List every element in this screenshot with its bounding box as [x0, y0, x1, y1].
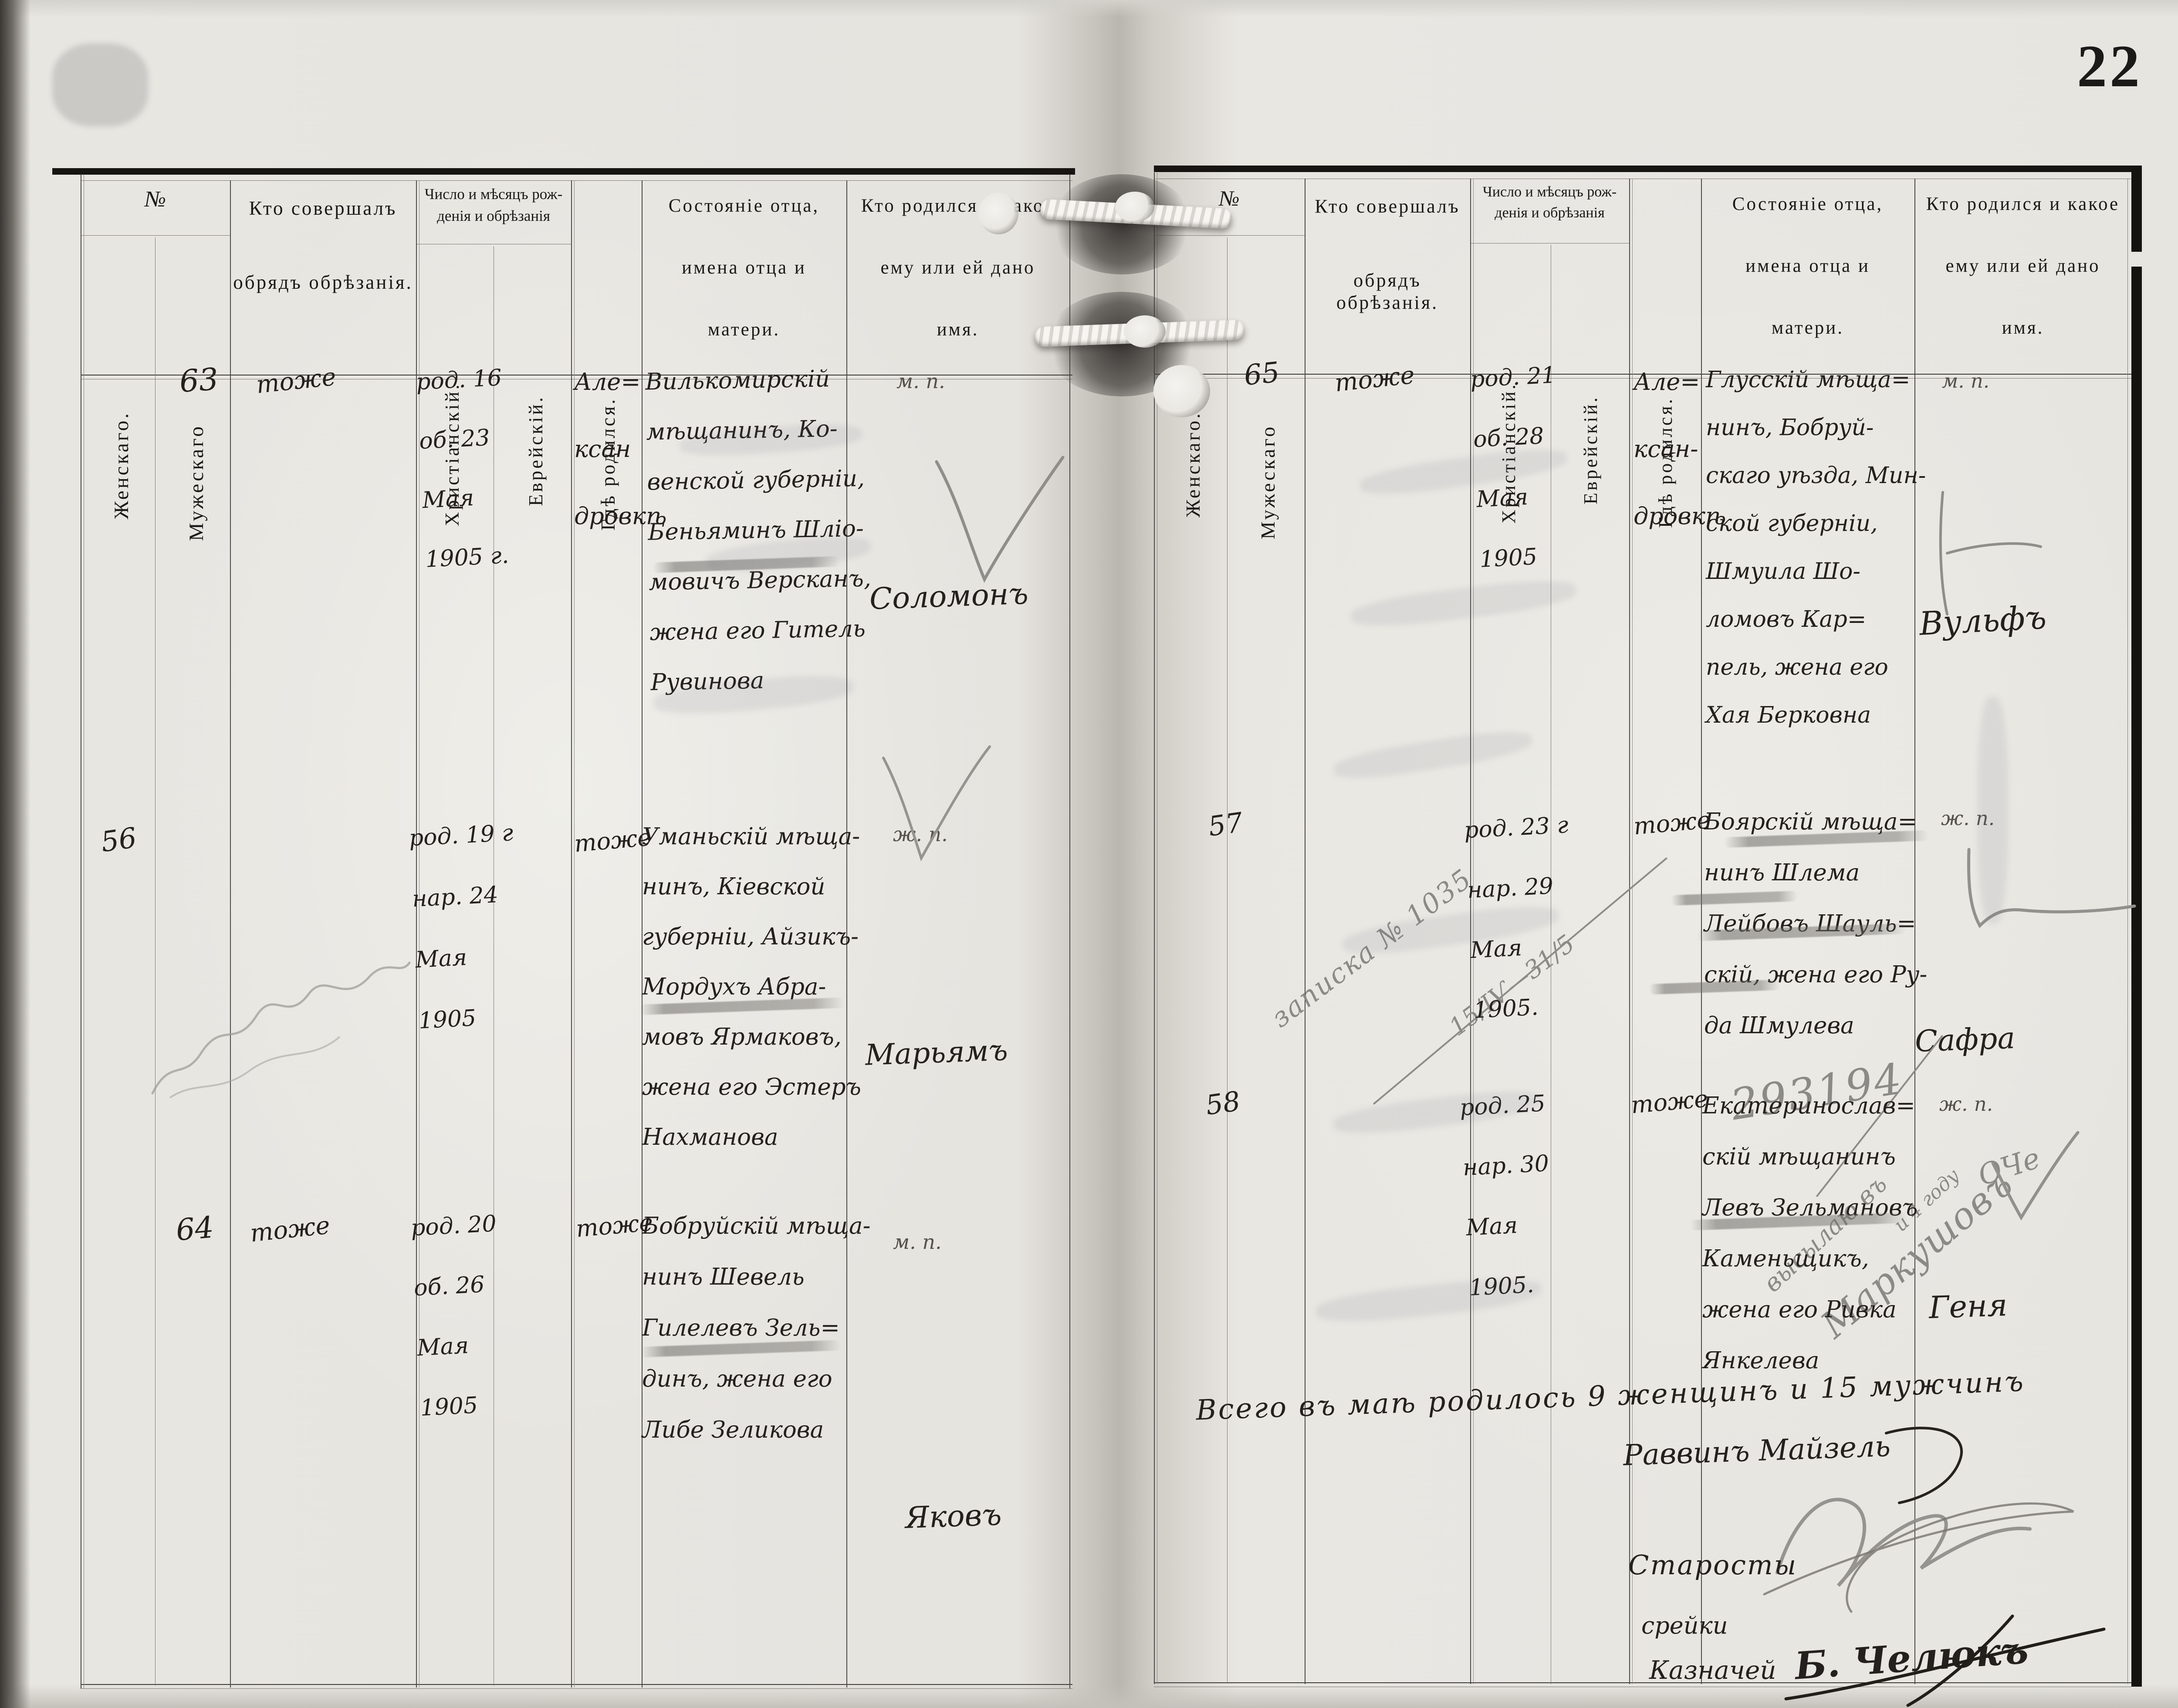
- table-top-bar: [52, 168, 1075, 175]
- entry-number: 56: [99, 822, 139, 859]
- bleedthrough-mark: [1349, 575, 1578, 632]
- col-header-jewish-date: Еврейскій.: [524, 395, 547, 506]
- pencil-scribble: [144, 950, 414, 1106]
- col-header-childname-line1: Кто родился и какое: [846, 195, 1069, 216]
- col-header-dates-line2: денія и обрѣзанія: [1470, 205, 1629, 221]
- col-header-father-line2: имена отца и: [1701, 255, 1914, 277]
- table-rule: [1154, 179, 2131, 179]
- col-header-childname-line1: Кто родился и какое: [1914, 193, 2131, 215]
- number-header-rule: [81, 235, 230, 236]
- column-rule: [571, 180, 572, 1688]
- bleedthrough-mark: [1332, 725, 1535, 785]
- sex-mark: м. п.: [893, 1230, 942, 1254]
- parents-entry: Глусскій мѣща=нинъ, Бобруй-скаго уѣзда, …: [1706, 369, 1926, 752]
- col-header-female: Женскаго.: [110, 411, 133, 519]
- staroste-label: Старосты: [1628, 1549, 1797, 1581]
- table-bottom-rule: [81, 1684, 1072, 1685]
- col-header-male: Мужескаго: [185, 424, 208, 541]
- parents-entry: Екатеринослав=скій мѣщанинъЛевъ Зельмано…: [1702, 1094, 1918, 1400]
- pencil-checkmark: [932, 449, 1067, 588]
- ink-signature-flourish: [1777, 1612, 2108, 1708]
- column-rule: [1305, 179, 1305, 1684]
- entry-number: 65: [1242, 356, 1281, 392]
- pencil-staroste-signature: [1751, 1464, 2082, 1620]
- col-header-jewish-date: Еврейскій.: [1579, 396, 1602, 504]
- where-born-entry: тоже: [573, 823, 653, 857]
- signature-second-line: срейки: [1641, 1612, 1728, 1639]
- entry-number: 58: [1204, 1085, 1242, 1121]
- pencil-flourish: [1930, 488, 2043, 619]
- col-header-dates-line1: Число и мѣсяцъ рож-: [1470, 184, 1629, 200]
- col-header-mohel-line2: обрядъ обрѣзанія.: [230, 271, 416, 294]
- date-christian: род. 19 гнар. 24Мая1905: [409, 822, 526, 1071]
- child-name: Геня: [1928, 1287, 2008, 1326]
- table-right-border: [2131, 267, 2142, 1687]
- table-rule: [81, 180, 1072, 181]
- pencil-checkmark: [880, 741, 993, 867]
- mohel-entry: тоже: [1333, 361, 1416, 398]
- column-rule: [230, 180, 231, 1688]
- entry-number: 57: [1206, 806, 1245, 842]
- string-knot: [1115, 192, 1154, 222]
- page-number: 22: [2077, 31, 2142, 101]
- col-header-male: Мужескаго: [1256, 425, 1279, 539]
- corner-smudge: [52, 44, 148, 126]
- table-right-border: [2131, 166, 2142, 252]
- pencil-checkmark: [1986, 1128, 2082, 1224]
- col-header-mohel-line1: Кто совершалъ: [1305, 195, 1470, 217]
- where-born-entry: тоже: [1633, 806, 1712, 840]
- bleedthrough-mark: [1978, 697, 2008, 923]
- col-header-childname-line2: ему или ей дано: [1914, 255, 2131, 277]
- column-rule: [1227, 237, 1228, 1684]
- col-header-female: Женскаго.: [1181, 411, 1204, 517]
- treasurer-label: Казначей: [1649, 1655, 1776, 1685]
- column-rule: [1069, 174, 1070, 1688]
- col-header-dates-line1: Число и мѣсяцъ рож-: [416, 186, 571, 203]
- entry-number: 64: [175, 1210, 215, 1248]
- col-header-father-line3: матери.: [642, 319, 846, 340]
- dates-header-rule: [1470, 243, 1629, 244]
- mohel-entry: тоже: [249, 1211, 331, 1248]
- where-born-entry: тоже: [1630, 1085, 1709, 1119]
- dates-header-rule: [416, 244, 571, 244]
- col-header-childname-line2: ему или ей дано: [846, 257, 1069, 278]
- date-christian: род. 20об. 26Мая1905: [410, 1212, 508, 1457]
- paper-hole: [1153, 365, 1210, 417]
- mohel-entry: тоже: [255, 363, 337, 399]
- table-rule: [81, 1688, 1072, 1689]
- col-header-father-line2: имена отца и: [642, 257, 846, 278]
- sex-mark: ж. п.: [1939, 1092, 1993, 1116]
- col-header-dates-line2: денія и обрѣзанія: [416, 207, 571, 225]
- scanned-register-spread: 22 № Женскаго. Мужескаго Кто совершалъ о…: [0, 0, 2178, 1708]
- entry-number: 63: [178, 361, 220, 399]
- column-rule: [81, 174, 81, 1688]
- col-header-number: №: [81, 186, 230, 212]
- col-header-father-line1: Состояніе отца,: [1701, 193, 1914, 215]
- date-christian: род. 21об. 28Мая1905: [1470, 364, 1568, 609]
- col-header-father-line3: матери.: [1701, 317, 1914, 338]
- date-christian: род. 16об. 23Мая1905 г.: [416, 366, 514, 608]
- paper-hole: [978, 193, 1018, 234]
- child-name: Яковъ: [905, 1498, 1002, 1536]
- table-top-bar: [1154, 166, 2142, 172]
- col-header-mohel-line1: Кто совершалъ: [230, 197, 416, 220]
- child-name: Марьямъ: [865, 1033, 1008, 1072]
- col-header-childname-line3: имя.: [1914, 317, 2131, 338]
- string-knot: [1124, 315, 1166, 348]
- col-header-father-line1: Состояніе отца,: [642, 195, 846, 216]
- sex-mark: м. п.: [896, 369, 945, 393]
- col-header-mohel-line2: обрядъ обрѣзанія.: [1305, 269, 1470, 314]
- sex-mark: м. п.: [1942, 369, 1989, 392]
